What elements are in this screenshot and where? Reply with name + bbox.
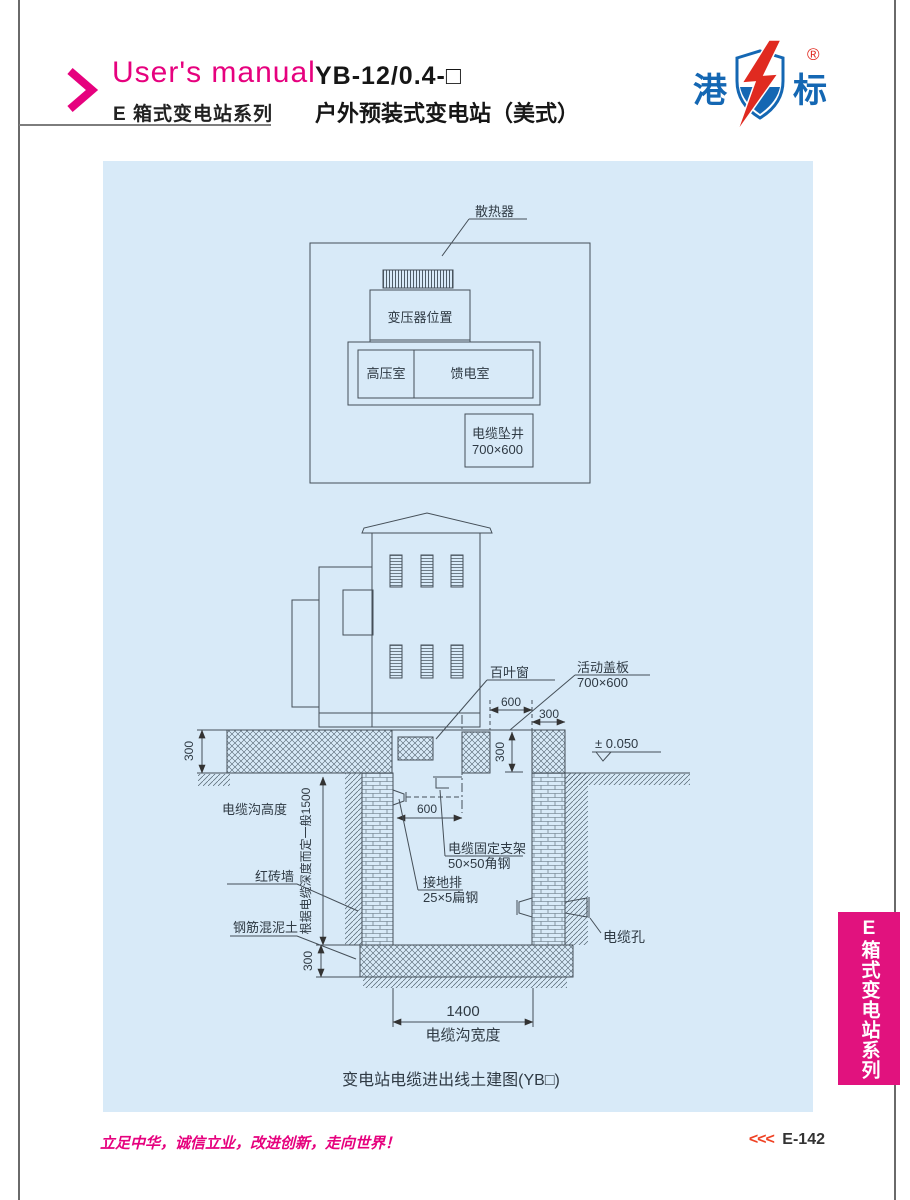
footer-slogan: 立足中华，诚信立业，改进创新，走向世界！ xyxy=(100,1132,400,1153)
level-mark-label: ± 0.050 xyxy=(595,736,638,751)
drawing-panel: 散热器 变压器位置 高压室 馈电室 电缆坠井 700×600 百叶窗 活动盖板 … xyxy=(103,161,813,1112)
cable-hole-inner xyxy=(519,898,532,917)
vent-grille xyxy=(451,555,463,587)
cable-shaft-size: 700×600 xyxy=(472,442,523,457)
shaft-300-value: 300 xyxy=(493,742,507,762)
page-number-value: E-142 xyxy=(782,1131,825,1148)
roof-outline xyxy=(362,513,492,533)
series-side-tab: E箱式变电站系列 xyxy=(838,912,900,1085)
vent-grille xyxy=(390,645,402,678)
concrete-leader xyxy=(230,936,356,959)
radiator-leader xyxy=(442,219,527,256)
left-margin-rule xyxy=(18,0,20,1200)
cover-plate-label: 活动盖板 xyxy=(577,660,629,675)
side-cabinet xyxy=(292,600,319,707)
level-symbol xyxy=(592,752,661,761)
series-subtitle: E 箱式变电站系列 xyxy=(113,99,273,126)
edge-300-value: 300 xyxy=(539,707,559,721)
transformer-tank xyxy=(319,567,372,727)
vent-grille xyxy=(451,645,463,678)
brick-wall-leader xyxy=(227,884,358,911)
vent-grille xyxy=(421,555,433,587)
product-title: 户外预装式变电站（美式） xyxy=(315,96,579,128)
soil-band-right xyxy=(565,773,588,945)
soil-hatch-left xyxy=(198,774,230,786)
logo-char-right: 标 xyxy=(793,72,827,110)
figure-caption: 变电站电缆进出线土建图(YB□) xyxy=(342,1071,560,1089)
radiator-hatch xyxy=(383,270,453,288)
brick-wall-label: 红砖墙 xyxy=(255,869,294,884)
trench-width-label: 电缆沟宽度 xyxy=(425,1027,500,1044)
manual-page: User's manual E 箱式变电站系列 YB-12/0.4-□ 户外预装… xyxy=(0,0,910,1200)
cable-hole-leader xyxy=(590,918,601,933)
registered-mark: ® xyxy=(807,45,820,64)
ground-bar-size-label: 25×5扁钢 xyxy=(423,890,478,905)
substation-elevation xyxy=(292,513,492,727)
louver-section xyxy=(398,737,433,760)
louver-label: 百叶窗 xyxy=(490,665,529,680)
angle-steel-bracket xyxy=(436,778,449,788)
concrete-label: 钢筋混泥土 xyxy=(233,920,298,935)
brand-title: User's manual xyxy=(112,56,316,90)
left-300-value: 300 xyxy=(182,741,196,761)
cover-plate-size: 700×600 xyxy=(577,675,628,690)
bracket-size-label: 50×50角钢 xyxy=(448,856,511,871)
ground-bar-fitting xyxy=(393,790,404,805)
page-marker-icon: <<< xyxy=(749,1131,774,1148)
ground-bar-label: 接地排 xyxy=(423,875,462,890)
bushing-box xyxy=(343,590,373,635)
plan-view-linework xyxy=(310,219,590,483)
soil-under-slab xyxy=(363,977,567,988)
width-1400-value: 1400 xyxy=(446,1003,479,1020)
bottom-300-extensions xyxy=(316,945,360,977)
bracket-label: 电缆固定支架 xyxy=(448,841,526,856)
vent-grille xyxy=(390,555,402,587)
civil-work-diagram: 散热器 变压器位置 高压室 馈电室 电缆坠井 700×600 百叶窗 活动盖板 … xyxy=(103,161,813,1112)
bottom-slab xyxy=(360,945,573,977)
cable-hole-label: 电缆孔 xyxy=(603,929,645,945)
chevron-right-icon xyxy=(62,64,102,116)
page-number: <<< E-142 xyxy=(735,1131,825,1149)
brick-wall-left xyxy=(362,773,393,945)
depth-note-label: 根据电缆深度而定一般1500 xyxy=(298,787,313,934)
slab-left xyxy=(227,730,392,773)
slab-right xyxy=(532,730,565,773)
hv-room-label: 高压室 xyxy=(366,366,405,381)
radiator-label: 散热器 xyxy=(475,204,514,219)
cover-600-value: 600 xyxy=(501,695,521,709)
company-logo: 港 标 ® xyxy=(685,36,835,138)
vent-grille xyxy=(421,645,433,678)
feeder-room-label: 馈电室 xyxy=(450,366,489,381)
transformer-position-label: 变压器位置 xyxy=(387,310,452,325)
bottom-300-value: 300 xyxy=(301,951,315,971)
header-divider xyxy=(19,124,271,126)
cable-shaft-label: 电缆坠井 xyxy=(472,426,524,441)
bracket-600-value: 600 xyxy=(417,802,437,816)
model-title: YB-12/0.4-□ xyxy=(315,62,462,91)
trench-height-label: 电缆沟高度 xyxy=(222,802,287,817)
brick-wall-right xyxy=(532,773,565,945)
slab-center xyxy=(462,732,490,773)
soil-band-left xyxy=(345,773,362,945)
logo-char-left: 港 xyxy=(693,72,728,110)
